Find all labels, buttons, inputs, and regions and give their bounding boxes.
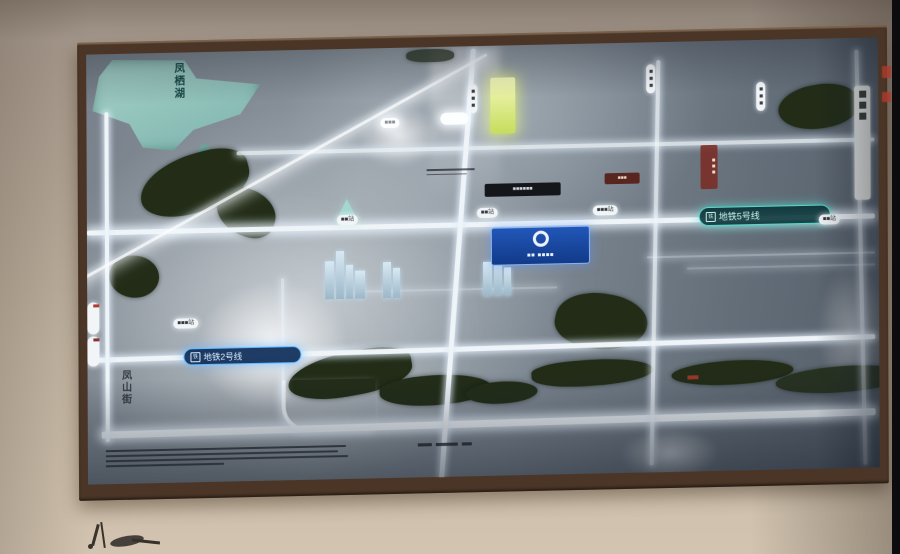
dark-banner: ■■■■■■ xyxy=(485,182,561,197)
legend-scale-lines xyxy=(106,445,348,470)
project-badge-text: ■■ ■■■■ xyxy=(492,252,589,260)
highlighted-tower xyxy=(490,77,515,134)
metro-line-2-text: 地铁2号线 xyxy=(203,350,242,363)
metro-icon: 铁 xyxy=(706,211,716,221)
metro-line-2-label: 铁 地铁2号线 xyxy=(183,346,301,366)
edge-pill xyxy=(87,302,99,334)
bottom-text-marks xyxy=(418,432,476,451)
metro-line-5-label: 铁 地铁5号线 xyxy=(699,204,831,226)
station-pill: ■■站 xyxy=(337,215,358,225)
park xyxy=(776,78,861,134)
lake-label: 凤栖湖 xyxy=(172,62,187,100)
station-pill: ■■站 xyxy=(477,208,498,218)
glare-spot xyxy=(620,427,720,481)
river xyxy=(531,355,654,390)
station-pill: ■■■站 xyxy=(593,205,618,216)
road-name-pill: ■■■ xyxy=(756,82,766,111)
map-board: 凤栖湖 xyxy=(86,37,880,484)
qr-info-sign xyxy=(854,86,870,200)
qr-code-icon xyxy=(859,91,866,98)
brand-ring-logo-icon xyxy=(532,231,548,247)
red-banner: ■■■ xyxy=(605,173,640,185)
plant-sketch xyxy=(84,520,194,554)
street-label: 凤山街 xyxy=(118,370,133,406)
station-pill: ■■站 xyxy=(819,214,840,224)
building-cluster xyxy=(325,247,367,300)
station-pill: ■■■站 xyxy=(173,318,198,329)
road-name-pill: ■■■ xyxy=(646,64,656,93)
red-wall-mark xyxy=(882,66,891,78)
metro-line-5-text: 地铁5号线 xyxy=(719,209,760,223)
station-pill-glowing xyxy=(440,112,468,125)
road-vertical xyxy=(650,60,661,465)
qr-code-icon xyxy=(859,113,866,120)
building-cluster xyxy=(383,260,402,298)
red-wall-mark xyxy=(882,92,891,102)
park xyxy=(406,49,454,63)
red-vertical-banner: ■■■ xyxy=(700,145,717,189)
road-corner xyxy=(282,378,376,432)
qr-code-icon xyxy=(859,102,866,109)
edge-pill xyxy=(87,336,99,366)
video-letterbox-strip xyxy=(892,0,900,554)
small-text-lines xyxy=(427,168,475,175)
red-poi-mark xyxy=(687,375,698,379)
station-pill-glowing: ■■■ xyxy=(380,118,399,128)
road-minor xyxy=(647,251,875,258)
project-badge: ■■ ■■■■ xyxy=(491,226,590,266)
metro-icon: 铁 xyxy=(190,352,200,362)
picture-frame: 凤栖湖 xyxy=(77,25,889,501)
road-name-pill: ■■■ xyxy=(468,84,478,113)
